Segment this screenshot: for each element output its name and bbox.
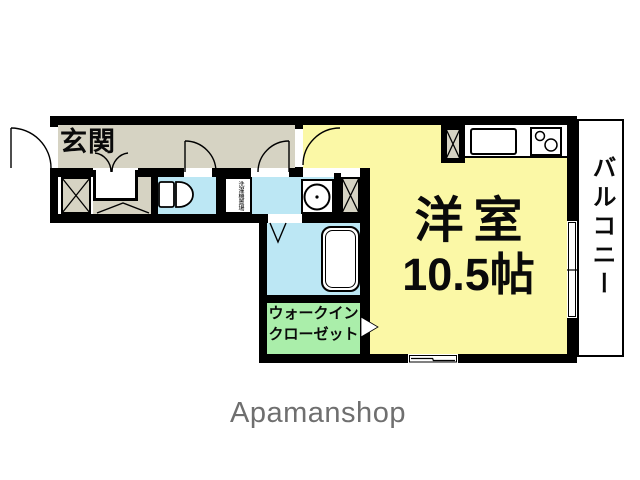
toilet-opening <box>184 168 212 177</box>
wall-room-left-lower <box>360 168 370 363</box>
window-bottom-opening <box>408 354 458 363</box>
toilet-room-floor <box>158 177 216 214</box>
pipe-space-box <box>445 128 461 160</box>
balcony-label: バルコニー <box>583 155 613 340</box>
brand-logo-text: Apamanshop <box>198 397 438 430</box>
wall-div-toilet-right <box>216 173 224 214</box>
wall-div-washroom-right <box>334 173 341 214</box>
wall-top <box>50 116 576 125</box>
washbasin-counter <box>301 179 334 214</box>
wic-label-line1: ウォークイン <box>267 306 360 321</box>
wall-wing-left <box>259 214 267 363</box>
entrance-step-box <box>93 170 138 201</box>
kitchen-counter <box>465 125 567 158</box>
room-label: 洋室 <box>370 197 567 246</box>
wic-label-line2: クローゼット <box>267 327 360 342</box>
wall-room-bottom <box>370 354 576 363</box>
room-door-opening <box>295 129 303 167</box>
bathroom-floor <box>267 223 360 295</box>
wall-left-wing-bottom <box>50 214 370 223</box>
bath-opening <box>268 214 302 223</box>
entrance-door-arc <box>11 128 51 168</box>
genkan-label: 玄関 <box>60 129 138 156</box>
washroom-opening <box>251 168 289 177</box>
window-right-opening <box>567 221 577 318</box>
wall-wing-bottom <box>259 354 370 363</box>
wall-div-toilet-left <box>151 173 158 214</box>
storage-box-b <box>341 177 360 214</box>
wall-bath-wic <box>267 295 360 303</box>
shoe-storage-box <box>61 177 91 214</box>
washing-machine-label: 洗濯機置場 <box>231 181 245 211</box>
floorplan-page: 玄関 洋室 10.5帖 バルコニー ウォークイン クローゼット 洗濯機置場 Ap… <box>0 0 640 480</box>
room-size-label: 10.5帖 <box>370 252 567 297</box>
entrance-opening <box>50 127 58 168</box>
